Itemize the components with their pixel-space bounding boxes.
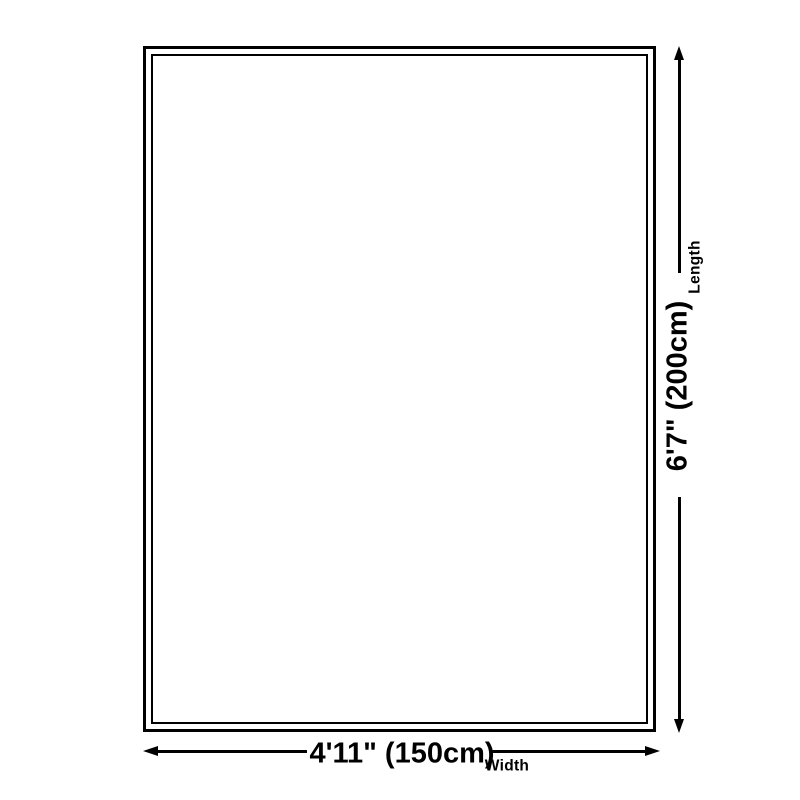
width-dimension-value: 4'11" (150cm)	[309, 740, 494, 769]
width-arrow-right-line	[492, 750, 645, 753]
width-dimension: 4'11" (150cm) Width	[0, 0, 800, 800]
arrow-right-icon	[645, 746, 660, 756]
arrow-left-icon	[143, 746, 158, 756]
width-axis-label: Width	[485, 758, 529, 774]
width-arrow-left-line	[157, 750, 307, 753]
dimension-diagram: Length 6'7" (200cm) 4'11" (150cm) Width	[0, 0, 800, 800]
